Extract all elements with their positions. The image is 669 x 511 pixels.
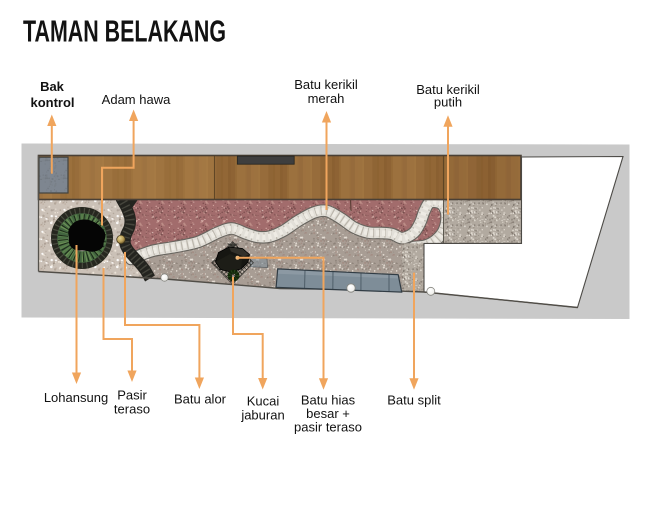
svg-text:Batu kerikil: Batu kerikil <box>294 77 358 92</box>
svg-text:pasir teraso: pasir teraso <box>294 420 362 435</box>
svg-text:Lohansung: Lohansung <box>44 390 108 405</box>
svg-text:Pasir: Pasir <box>117 388 147 403</box>
svg-text:Batu split: Batu split <box>387 393 441 408</box>
svg-text:Kucai: Kucai <box>247 394 280 409</box>
svg-text:merah: merah <box>308 91 345 106</box>
svg-text:jaburan: jaburan <box>240 408 284 423</box>
svg-text:Bak: Bak <box>40 79 65 94</box>
svg-text:teraso: teraso <box>114 402 150 417</box>
svg-text:Adam hawa: Adam hawa <box>102 92 171 107</box>
svg-text:kontrol: kontrol <box>30 95 74 110</box>
svg-text:Batu alor: Batu alor <box>174 392 227 407</box>
svg-text:TAMAN BELAKANG: TAMAN BELAKANG <box>23 13 226 48</box>
svg-text:putih: putih <box>434 95 462 110</box>
